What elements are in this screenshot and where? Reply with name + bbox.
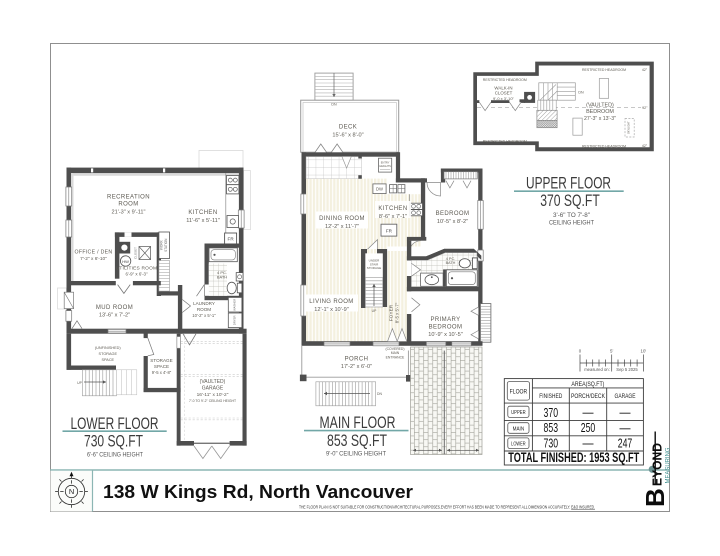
svg-text:DINING ROOM: DINING ROOM xyxy=(319,216,365,222)
svg-text:HW: HW xyxy=(122,259,129,264)
svg-text:MUD ROOM: MUD ROOM xyxy=(96,305,133,311)
svg-text:RESTRICTED HEADROOM: RESTRICTED HEADROOM xyxy=(582,67,626,72)
svg-text:DN: DN xyxy=(331,103,337,107)
svg-text:MAIN FLOOR: MAIN FLOOR xyxy=(320,414,396,432)
svg-text:17'-2" x 6'-0": 17'-2" x 6'-0" xyxy=(341,364,372,370)
svg-text:10'-5" x 8'-2": 10'-5" x 8'-2" xyxy=(437,219,468,225)
svg-text:measured on:: measured on: xyxy=(584,367,610,372)
svg-text:42": 42" xyxy=(642,68,648,72)
svg-text:BATH: BATH xyxy=(446,261,456,265)
svg-text:LOWER: LOWER xyxy=(511,442,526,448)
svg-text:92": 92" xyxy=(642,106,648,110)
svg-text:PORCH/DECK: PORCH/DECK xyxy=(571,393,606,400)
svg-text:DECK: DECK xyxy=(339,125,357,131)
svg-text:AREA(SQ.FT): AREA(SQ.FT) xyxy=(571,381,604,388)
svg-text:CLOSET: CLOSET xyxy=(134,247,138,259)
svg-text:BEDROOM: BEDROOM xyxy=(429,324,463,330)
svg-text:WASHER: WASHER xyxy=(233,299,237,311)
svg-text:STORAGE: STORAGE xyxy=(150,358,172,363)
svg-text:N: N xyxy=(69,487,74,496)
svg-text:UPPER: UPPER xyxy=(511,410,526,416)
svg-text:DW: DW xyxy=(376,187,383,192)
svg-text:HEIGHTS: HEIGHTS xyxy=(379,164,391,168)
svg-text:9'-0" CEILING HEIGHT: 9'-0" CEILING HEIGHT xyxy=(326,450,386,457)
svg-text:UPPER FLOOR: UPPER FLOOR xyxy=(526,174,611,192)
svg-text:42": 42" xyxy=(642,144,648,148)
svg-text:370: 370 xyxy=(544,406,559,420)
svg-text:STORAGE: STORAGE xyxy=(99,352,118,356)
svg-text:CEILING HEIGHT: CEILING HEIGHT xyxy=(549,220,594,227)
svg-text:6'-6" CEILING HEIGHT: 6'-6" CEILING HEIGHT xyxy=(87,452,143,459)
svg-text:4 PC.: 4 PC. xyxy=(446,257,456,261)
svg-text:FINISHED: FINISHED xyxy=(539,393,562,400)
svg-text:10': 10' xyxy=(641,349,647,354)
svg-text:RESTRICTED HEADROOM: RESTRICTED HEADROOM xyxy=(483,138,527,143)
svg-text:6'-9" x 6'-3": 6'-9" x 6'-3" xyxy=(125,272,148,277)
svg-text:370 SQ.FT: 370 SQ.FT xyxy=(540,192,600,210)
svg-text:15'-6" x 8'-0": 15'-6" x 8'-0" xyxy=(332,132,363,138)
svg-text:8'-5 x 5'-7": 8'-5 x 5'-7" xyxy=(395,302,400,323)
svg-text:KITCHEN: KITCHEN xyxy=(378,206,407,212)
svg-text:13'-6" x 7'-2": 13'-6" x 7'-2" xyxy=(99,312,130,318)
svg-text:(VAULTED): (VAULTED) xyxy=(200,379,226,385)
svg-text:DN: DN xyxy=(578,90,584,94)
svg-text:RESTRICTED HEADROOM: RESTRICTED HEADROOM xyxy=(582,143,626,148)
svg-text:SKYLIGHT: SKYLIGHT xyxy=(627,121,631,134)
svg-text:250: 250 xyxy=(581,421,596,435)
svg-text:11'-6" x 5'-11": 11'-6" x 5'-11" xyxy=(186,218,220,224)
svg-text:KITCHEN: KITCHEN xyxy=(188,210,217,216)
svg-text:B: B xyxy=(640,488,670,507)
svg-text:12'-1" x 10'-9": 12'-1" x 10'-9" xyxy=(314,307,348,313)
svg-text:SPACE: SPACE xyxy=(154,364,169,369)
svg-text:UP: UP xyxy=(77,381,82,385)
svg-text:10'-9" x 10'-5": 10'-9" x 10'-5" xyxy=(428,332,462,338)
svg-text:7'-2" x 6'-10": 7'-2" x 6'-10" xyxy=(80,256,107,262)
svg-text:PRIMARY: PRIMARY xyxy=(430,317,460,323)
svg-text:7'-0 TO 9'-2" CEILING HEIGHT: 7'-0 TO 9'-2" CEILING HEIGHT xyxy=(189,399,236,403)
svg-text:PORCH: PORCH xyxy=(345,356,369,362)
svg-text:FOYER: FOYER xyxy=(388,304,394,321)
svg-text:STORAGE: STORAGE xyxy=(367,266,382,270)
svg-text:LIVING ROOM: LIVING ROOM xyxy=(309,299,353,305)
svg-text:OFFICE / DEN: OFFICE / DEN xyxy=(75,250,113,256)
svg-text:138 W Kings Rd, North Vancouve: 138 W Kings Rd, North Vancouver xyxy=(103,481,413,502)
svg-text:9'-5 x 4'-8": 9'-5 x 4'-8" xyxy=(152,370,172,375)
svg-text:10'-2" x 5'-1": 10'-2" x 5'-1" xyxy=(192,313,216,318)
svg-text:ENTRY: ENTRY xyxy=(381,160,390,164)
svg-text:853: 853 xyxy=(544,421,559,435)
svg-text:STATION: STATION xyxy=(164,238,168,252)
svg-text:TOTAL FINISHED: 1953 SQ.FT: TOTAL FINISHED: 1953 SQ.FT xyxy=(508,449,639,465)
svg-text:853 SQ.FT: 853 SQ.FT xyxy=(327,432,387,450)
svg-text:EYOND: EYOND xyxy=(650,443,665,486)
svg-text:MEASURING: MEASURING xyxy=(664,448,671,484)
svg-text:(VAULTED): (VAULTED) xyxy=(586,102,614,108)
svg-text:FR: FR xyxy=(386,228,393,233)
svg-text:3'-6" TO 7'-8": 3'-6" TO 7'-8" xyxy=(553,212,591,219)
svg-text:MAIN: MAIN xyxy=(513,426,525,432)
svg-text:RESTRICTED HEADROOM: RESTRICTED HEADROOM xyxy=(483,77,527,82)
svg-text:ROOM: ROOM xyxy=(118,202,138,208)
svg-text:ENTRANCE: ENTRANCE xyxy=(386,355,405,359)
svg-text:RECREATION: RECREATION xyxy=(107,195,150,201)
svg-text:FR: FR xyxy=(228,237,235,242)
svg-text:21'-3" x 9'-11": 21'-3" x 9'-11" xyxy=(112,209,146,215)
svg-text:16'-11" x 10'-2": 16'-11" x 10'-2" xyxy=(197,392,229,398)
svg-text:SPACE: SPACE xyxy=(102,358,115,362)
svg-text:FLOOR: FLOOR xyxy=(510,388,528,395)
svg-text:GARAGE: GARAGE xyxy=(202,385,224,391)
svg-text:ROOM: ROOM xyxy=(197,307,211,312)
svg-text:8'-6" x 7'-1": 8'-6" x 7'-1" xyxy=(379,214,407,220)
svg-text:LOWER FLOOR: LOWER FLOOR xyxy=(71,415,159,433)
svg-text:GARAGE: GARAGE xyxy=(615,393,636,400)
svg-text:UP: UP xyxy=(372,309,377,313)
svg-text:DRYER: DRYER xyxy=(233,316,237,326)
svg-text:BATH: BATH xyxy=(217,275,227,280)
svg-text:5': 5' xyxy=(610,349,613,354)
svg-text:12'-2" x 11'-7": 12'-2" x 11'-7" xyxy=(325,224,359,230)
svg-text:27'-3" x 13'-3": 27'-3" x 13'-3" xyxy=(584,116,616,122)
svg-text:9'-0 x 3'-10": 9'-0 x 3'-10" xyxy=(493,96,515,101)
svg-text:LAUNDRY: LAUNDRY xyxy=(193,301,215,306)
svg-text:DN: DN xyxy=(377,392,382,396)
svg-text:THE FLOOR PLAN IS NOT SUITAB: THE FLOOR PLAN IS NOT SUITABLE FOR CONST… xyxy=(299,504,595,509)
svg-text:Sep 5 2025: Sep 5 2025 xyxy=(616,367,638,372)
svg-text:730 SQ.FT: 730 SQ.FT xyxy=(84,432,143,450)
svg-text:BEDROOM: BEDROOM xyxy=(436,211,470,217)
svg-text:(UNFINISHED): (UNFINISHED) xyxy=(95,346,121,350)
svg-text:BEDROOM: BEDROOM xyxy=(586,109,614,115)
